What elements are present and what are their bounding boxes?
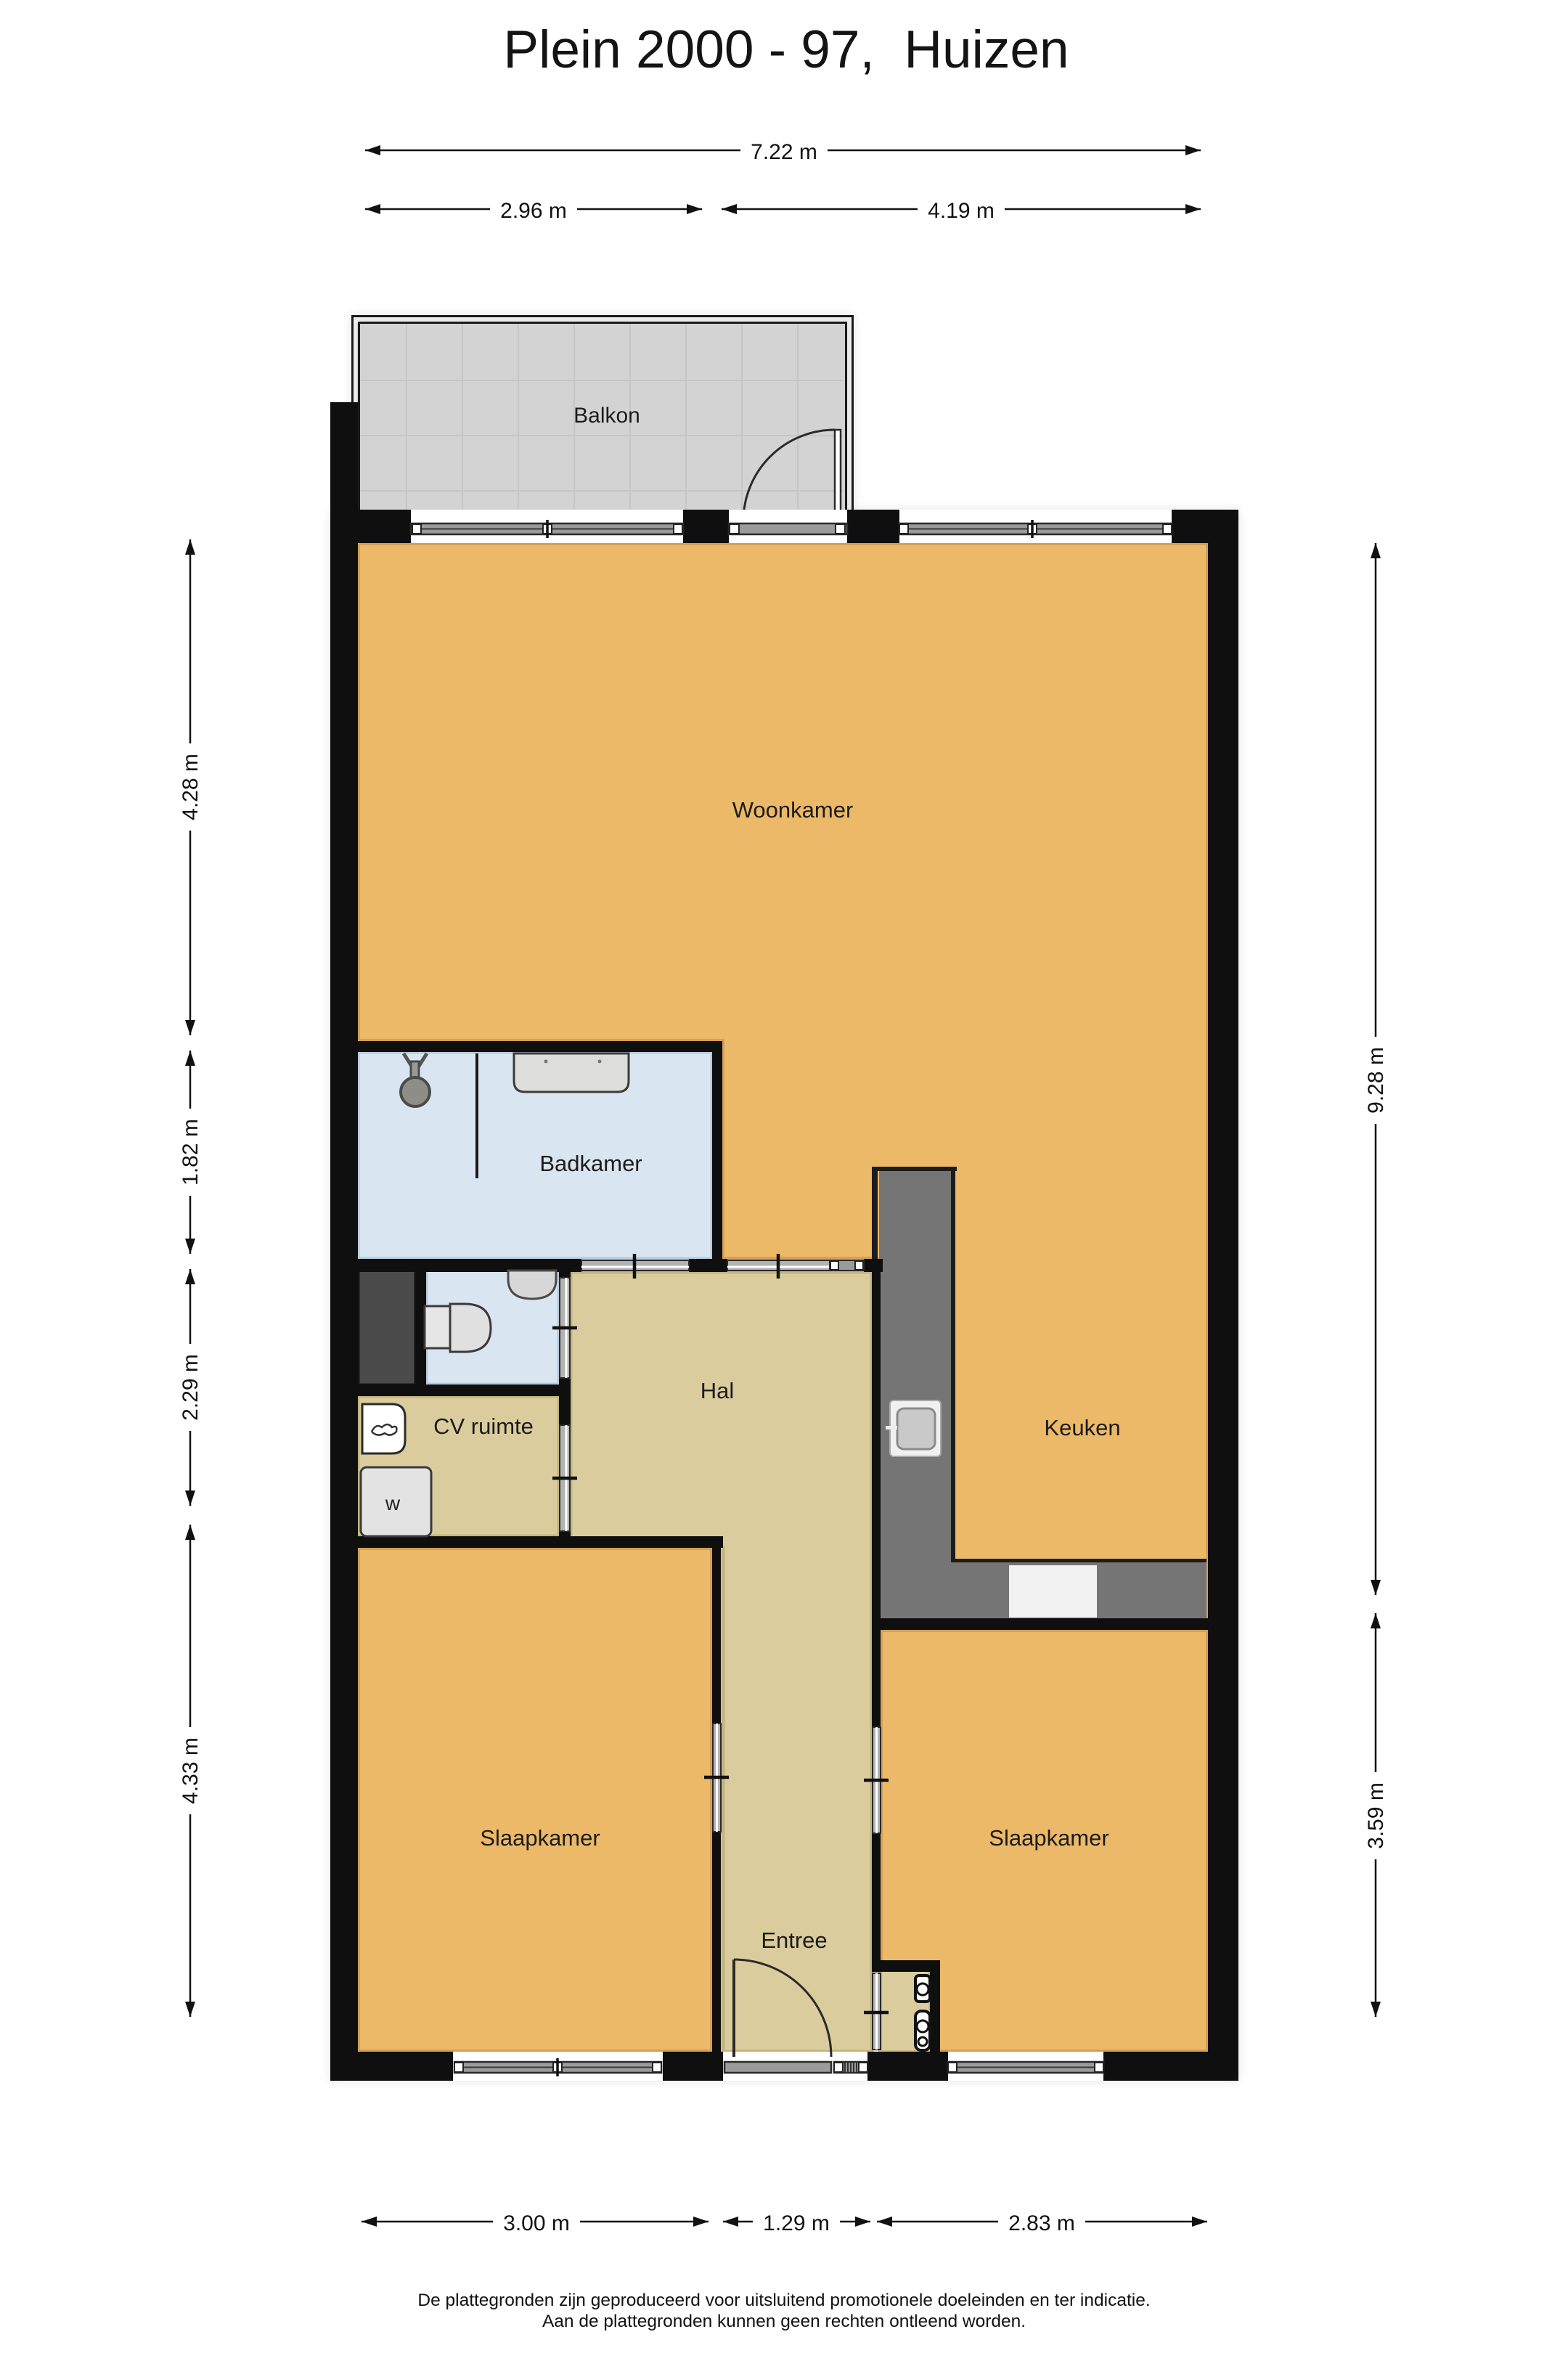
svg-text:CV ruimte: CV ruimte (433, 1414, 534, 1439)
svg-text:2.96 m: 2.96 m (500, 199, 567, 223)
svg-text:Keuken: Keuken (1044, 1415, 1120, 1440)
svg-text:1.29 m: 1.29 m (763, 2211, 830, 2235)
svg-text:Plein 2000 - 97, Huizen: Plein 2000 - 97, Huizen (503, 20, 1069, 79)
svg-text:2.29 m: 2.29 m (179, 1354, 203, 1421)
svg-text:7.22 m: 7.22 m (751, 140, 817, 164)
svg-text:Woonkamer: Woonkamer (732, 797, 854, 823)
svg-text:4.19 m: 4.19 m (928, 199, 995, 223)
svg-text:Aan de plattegronden kunnen ge: Aan de plattegronden kunnen geen rechten… (542, 2312, 1026, 2331)
svg-text:3.00 m: 3.00 m (503, 2211, 570, 2235)
svg-text:Badkamer: Badkamer (539, 1151, 642, 1176)
svg-text:Entree: Entree (761, 1928, 827, 1953)
svg-text:Hal: Hal (701, 1378, 735, 1403)
svg-text:4.28 m: 4.28 m (179, 754, 203, 820)
svg-text:9.28 m: 9.28 m (1364, 1047, 1388, 1114)
svg-text:4.33 m: 4.33 m (179, 1737, 203, 1804)
svg-text:1.82 m: 1.82 m (179, 1119, 203, 1186)
svg-text:3.59 m: 3.59 m (1364, 1782, 1388, 1849)
svg-text:w: w (385, 1492, 401, 1514)
svg-text:Balkon: Balkon (573, 404, 640, 428)
svg-text:De plattegronden zijn geproduc: De plattegronden zijn geproduceerd voor … (417, 2291, 1150, 2310)
svg-text:2.83 m: 2.83 m (1008, 2211, 1075, 2235)
svg-text:Slaapkamer: Slaapkamer (989, 1825, 1108, 1851)
svg-text:Slaapkamer: Slaapkamer (480, 1825, 600, 1851)
